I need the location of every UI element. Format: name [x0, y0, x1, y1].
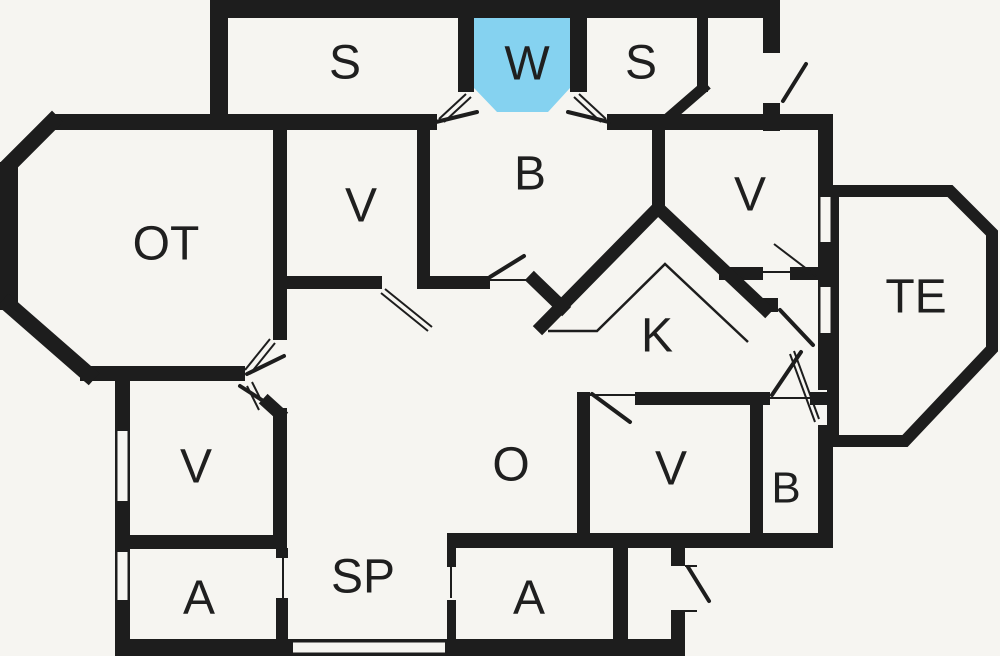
room-label-sp: SP [331, 551, 395, 604]
window-frame-line [128, 431, 131, 501]
wall-segment [210, 0, 780, 18]
room-label-v-left: V [180, 441, 212, 494]
wall-segment [115, 374, 130, 431]
wall-segment [697, 14, 708, 92]
wall-segment [115, 535, 287, 549]
room-label-ot: OT [133, 218, 200, 271]
window-frame-line [128, 552, 131, 600]
room-label-a-right: A [513, 572, 545, 625]
wall-segment [80, 366, 245, 381]
window-frame-line [831, 197, 834, 242]
wall-segment [447, 600, 456, 656]
window-frame-line [115, 431, 118, 501]
wall-segment [50, 114, 437, 130]
wall-segment [273, 408, 287, 535]
wall-segment [273, 130, 287, 340]
wall-segment [818, 333, 833, 390]
room-label-o: O [492, 439, 529, 492]
wall-segment [115, 639, 293, 656]
wall-segment [818, 425, 833, 548]
wall-segment [210, 0, 228, 118]
floorplan-canvas: SWSBVVOTTEKVOVBASPA [0, 0, 1000, 656]
wall-segment [0, 162, 18, 310]
room-label-v-bottom: V [655, 443, 687, 496]
wall-segment [417, 130, 430, 285]
window-frame-line [818, 197, 821, 242]
wall-segment [635, 392, 770, 405]
wall-segment [818, 114, 833, 197]
window-frame-line [293, 639, 445, 643]
room-label-a-left: A [183, 572, 215, 625]
wall-segment [445, 639, 685, 656]
floorplan-svg: SWSBVVOTTEKVOVBASPA [0, 0, 1000, 656]
wall-segment [750, 398, 763, 535]
room-label-b-top: B [514, 148, 546, 201]
wall-segment [818, 242, 833, 287]
wall-segment [287, 276, 382, 289]
room-label-s-left: S [329, 37, 361, 90]
wall-segment [417, 276, 490, 289]
window-frame-line [831, 287, 834, 333]
window-frame-line [115, 552, 118, 600]
wall-segment [570, 14, 587, 92]
window-frame-line [293, 653, 445, 656]
room-label-b-bottom: B [771, 464, 800, 513]
room-label-te: TE [885, 271, 946, 324]
room-label-v-topright: V [734, 169, 766, 222]
wall-segment [447, 548, 456, 567]
room-label-w: W [504, 38, 550, 91]
window-frame-line [818, 287, 821, 333]
room-label-s-right: S [625, 37, 657, 90]
room-label-v-top: V [345, 180, 377, 233]
room-label-k: K [641, 310, 673, 363]
wall-segment [607, 114, 833, 130]
wall-segment [671, 548, 685, 566]
wall-segment [458, 14, 474, 92]
wall-segment [763, 0, 780, 53]
wall-segment [577, 392, 590, 535]
wall-segment [447, 533, 833, 548]
